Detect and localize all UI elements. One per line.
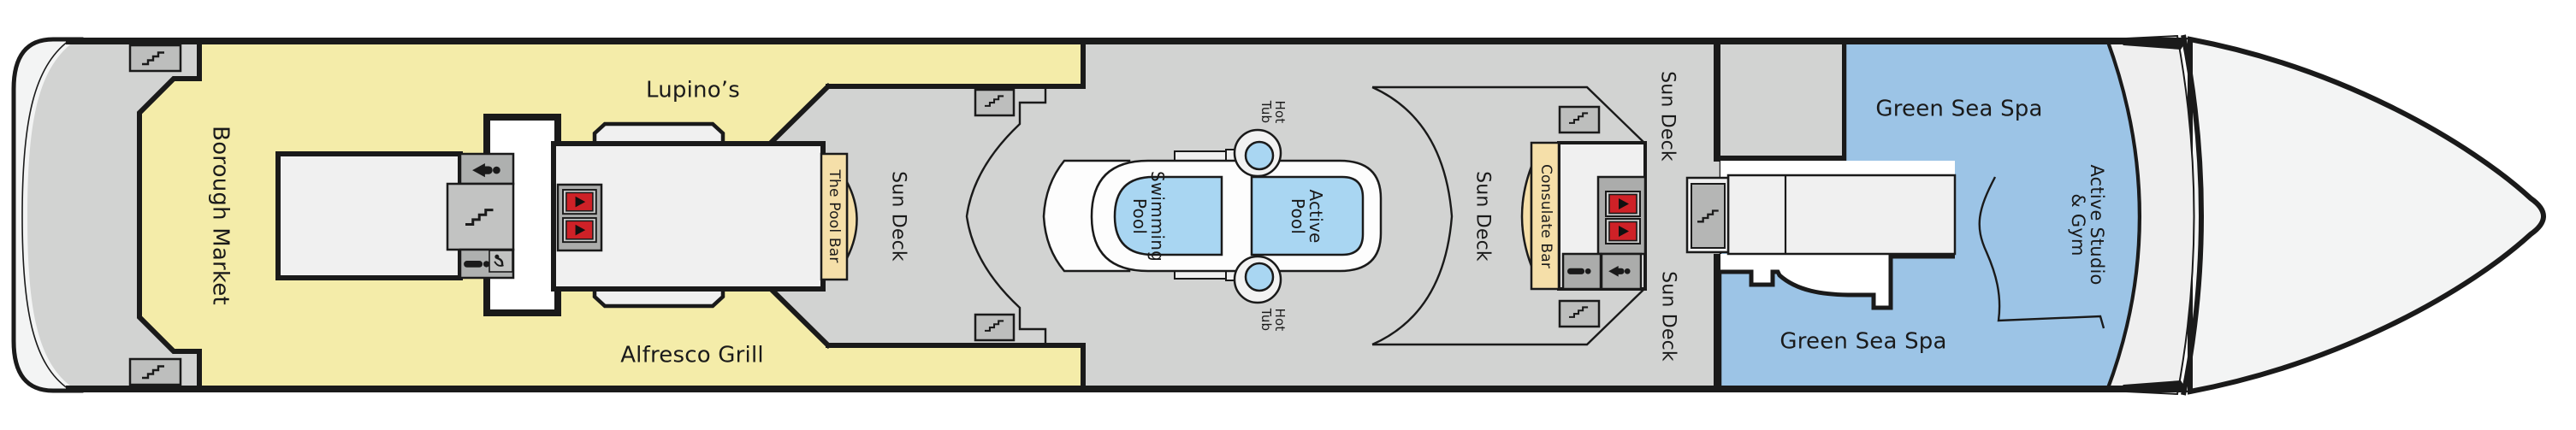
- borough-market-label: Borough Market: [208, 126, 231, 305]
- sun-deck-label-aft: Sun Deck: [888, 171, 908, 262]
- mens-restroom-icon: [1567, 268, 1591, 274]
- deck-plan: Borough Market Lupino’s Alfresco Grill T…: [0, 0, 2576, 430]
- elevator-icon: [1606, 219, 1640, 244]
- pool-bar-label: The Pool Bar: [826, 169, 841, 262]
- borough-market-room: [278, 154, 513, 278]
- lupinos-label: Lupino’s: [646, 79, 740, 102]
- hot-tub-bottom: [1246, 263, 1273, 291]
- elevator-icon: [1606, 191, 1640, 216]
- active-studio-gym-label: Active Studio& Gym: [2069, 164, 2106, 285]
- active-pool-label: ActivePool: [1288, 189, 1324, 243]
- hot-tub-label-bottom: HotTub: [1258, 309, 1286, 332]
- hot-tub-top: [1246, 142, 1273, 169]
- green-sea-spa-label-top: Green Sea Spa: [1875, 97, 2042, 121]
- sun-deck-label-fwd-top: Sun Deck: [1657, 71, 1677, 162]
- bow: [2108, 35, 2543, 395]
- forward-gray-block: [1720, 42, 1848, 162]
- alfresco-grill-label: Alfresco Grill: [620, 344, 764, 367]
- elevator-icon: [563, 190, 596, 214]
- sun-deck-label-mid: Sun Deck: [1472, 171, 1492, 262]
- elevator-icon: [563, 218, 596, 242]
- sun-deck-label-fwd-bottom: Sun Deck: [1658, 271, 1678, 362]
- swimming-pool-label: SwimmingPool: [1130, 171, 1166, 262]
- consulate-bar-label: Consulate Bar: [1537, 164, 1553, 268]
- green-sea-spa-label-bottom: Green Sea Spa: [1780, 330, 1946, 353]
- midship-deckhouse: [554, 124, 823, 306]
- mens-restroom-icon: [464, 261, 489, 268]
- hot-tub-label-top: HotTub: [1258, 101, 1286, 124]
